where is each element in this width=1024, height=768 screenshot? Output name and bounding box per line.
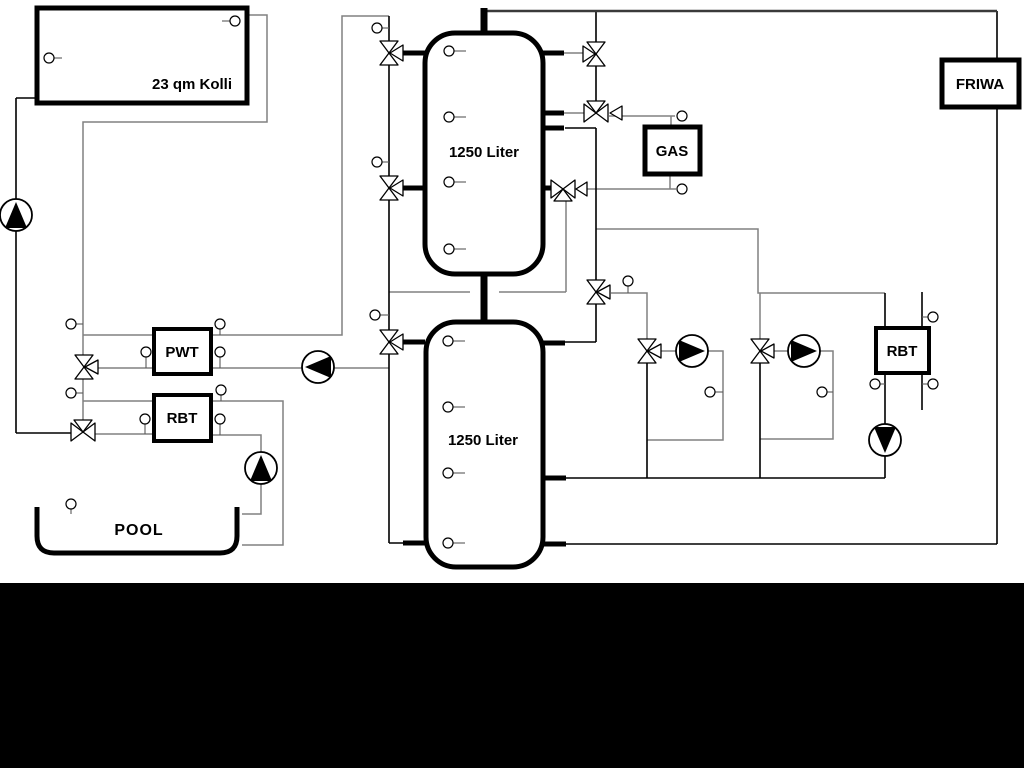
temp-sensor xyxy=(66,319,83,329)
valve-tank1-right-top xyxy=(583,42,605,66)
valve-circuit2 xyxy=(751,339,774,363)
temp-sensor xyxy=(141,347,151,368)
temp-sensor xyxy=(215,347,225,368)
temp-sensor xyxy=(66,499,76,514)
valve-gas-return xyxy=(551,180,587,201)
valve-pwt xyxy=(75,355,98,379)
pipe-left-valve-column xyxy=(389,16,403,543)
friwa-label: FRIWA xyxy=(956,76,1004,93)
temp-sensor xyxy=(215,414,225,435)
temp-sensor xyxy=(922,379,938,389)
pump-pool xyxy=(245,452,277,484)
pump-pwt-secondary xyxy=(302,351,334,383)
temp-sensor xyxy=(66,388,83,398)
gas-label: GAS xyxy=(656,143,689,160)
temp-sensor xyxy=(870,379,885,389)
tank2-left-stubs xyxy=(403,342,425,543)
temp-sensor xyxy=(370,310,389,320)
temp-sensor xyxy=(677,184,687,194)
temp-sensor xyxy=(372,157,389,167)
valve-pool-return xyxy=(71,420,95,441)
pipe-circuit1-feed xyxy=(611,293,647,339)
valve-tank1-left-top xyxy=(380,41,403,65)
tank1-right-stubs xyxy=(543,53,564,188)
pump-rbt-right xyxy=(869,424,901,456)
valve-circuit1 xyxy=(638,339,661,363)
valve-distribution xyxy=(587,280,610,304)
collector-label: 23 qm Kolli xyxy=(152,76,232,93)
temp-sensor xyxy=(623,276,633,293)
pump-circuit1 xyxy=(676,335,708,367)
temp-sensor xyxy=(677,111,687,121)
tank1-left-stubs xyxy=(403,53,425,188)
pipe-rbt-pool-bottom xyxy=(95,434,261,514)
rbt-right-label: RBT xyxy=(887,343,918,360)
tank-top-label: 1250 Liter xyxy=(449,144,519,161)
tank-bottom-label: 1250 Liter xyxy=(448,432,518,449)
valve-tank1-left-mid xyxy=(380,176,403,200)
temp-sensor xyxy=(922,312,938,322)
valve-gas-supply xyxy=(584,101,622,122)
pipe-distribution xyxy=(596,229,885,293)
pipe-tank-right-riser xyxy=(565,128,596,342)
temp-sensor xyxy=(140,414,150,434)
pipe-stub-links xyxy=(564,53,584,113)
hydraulic-diagram: 23 qm Kolli 1250 Liter 1250 Liter PWT RB… xyxy=(0,0,1024,768)
valve-tank2-left xyxy=(380,330,403,354)
temp-sensor xyxy=(705,387,723,397)
footer-bar xyxy=(0,583,1024,768)
tank2-right-stubs xyxy=(543,343,566,544)
pipe-collector-return xyxy=(16,98,71,433)
pipe-circuit-returns xyxy=(647,363,760,478)
temp-sensor xyxy=(817,387,833,397)
pump-solar xyxy=(0,199,32,231)
rbt-left-label: RBT xyxy=(167,410,198,427)
temp-sensor xyxy=(215,319,225,335)
temp-sensor xyxy=(372,23,389,33)
pwt-label: PWT xyxy=(165,344,198,361)
pump-circuit2 xyxy=(788,335,820,367)
temp-sensor xyxy=(216,385,226,401)
pool-label: POOL xyxy=(114,522,163,539)
